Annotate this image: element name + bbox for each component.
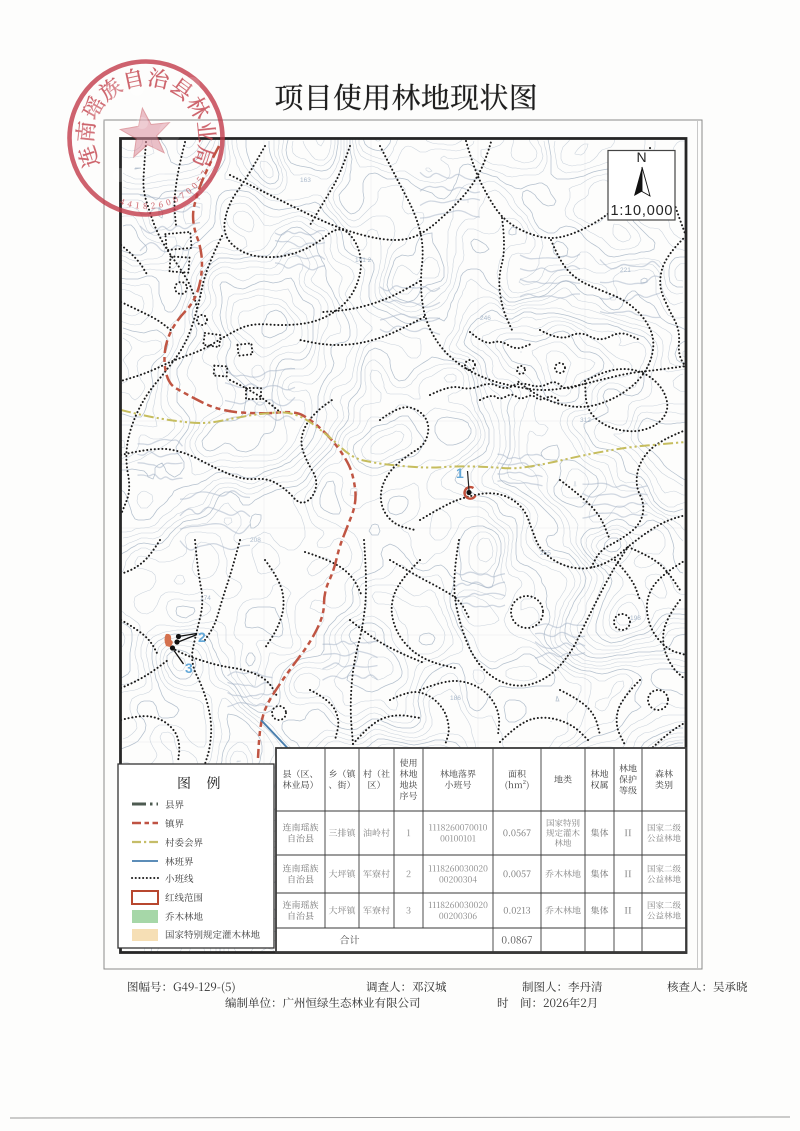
svg-text:255: 255 xyxy=(540,550,551,557)
svg-text:2: 2 xyxy=(198,629,206,645)
svg-text:198: 198 xyxy=(630,615,641,622)
svg-text:163: 163 xyxy=(300,177,311,184)
svg-text:1:10,000: 1:10,000 xyxy=(611,203,673,219)
svg-text:208: 208 xyxy=(250,537,261,544)
svg-text:312: 312 xyxy=(580,417,591,424)
svg-text:1: 1 xyxy=(456,465,464,481)
svg-text:246: 246 xyxy=(480,315,491,322)
svg-text:221: 221 xyxy=(620,267,631,274)
svg-text:141 2: 141 2 xyxy=(355,257,372,264)
svg-text:174: 174 xyxy=(200,595,211,602)
svg-text:186: 186 xyxy=(450,695,461,702)
svg-text:3: 3 xyxy=(185,660,193,676)
svg-text:N: N xyxy=(636,149,646,165)
